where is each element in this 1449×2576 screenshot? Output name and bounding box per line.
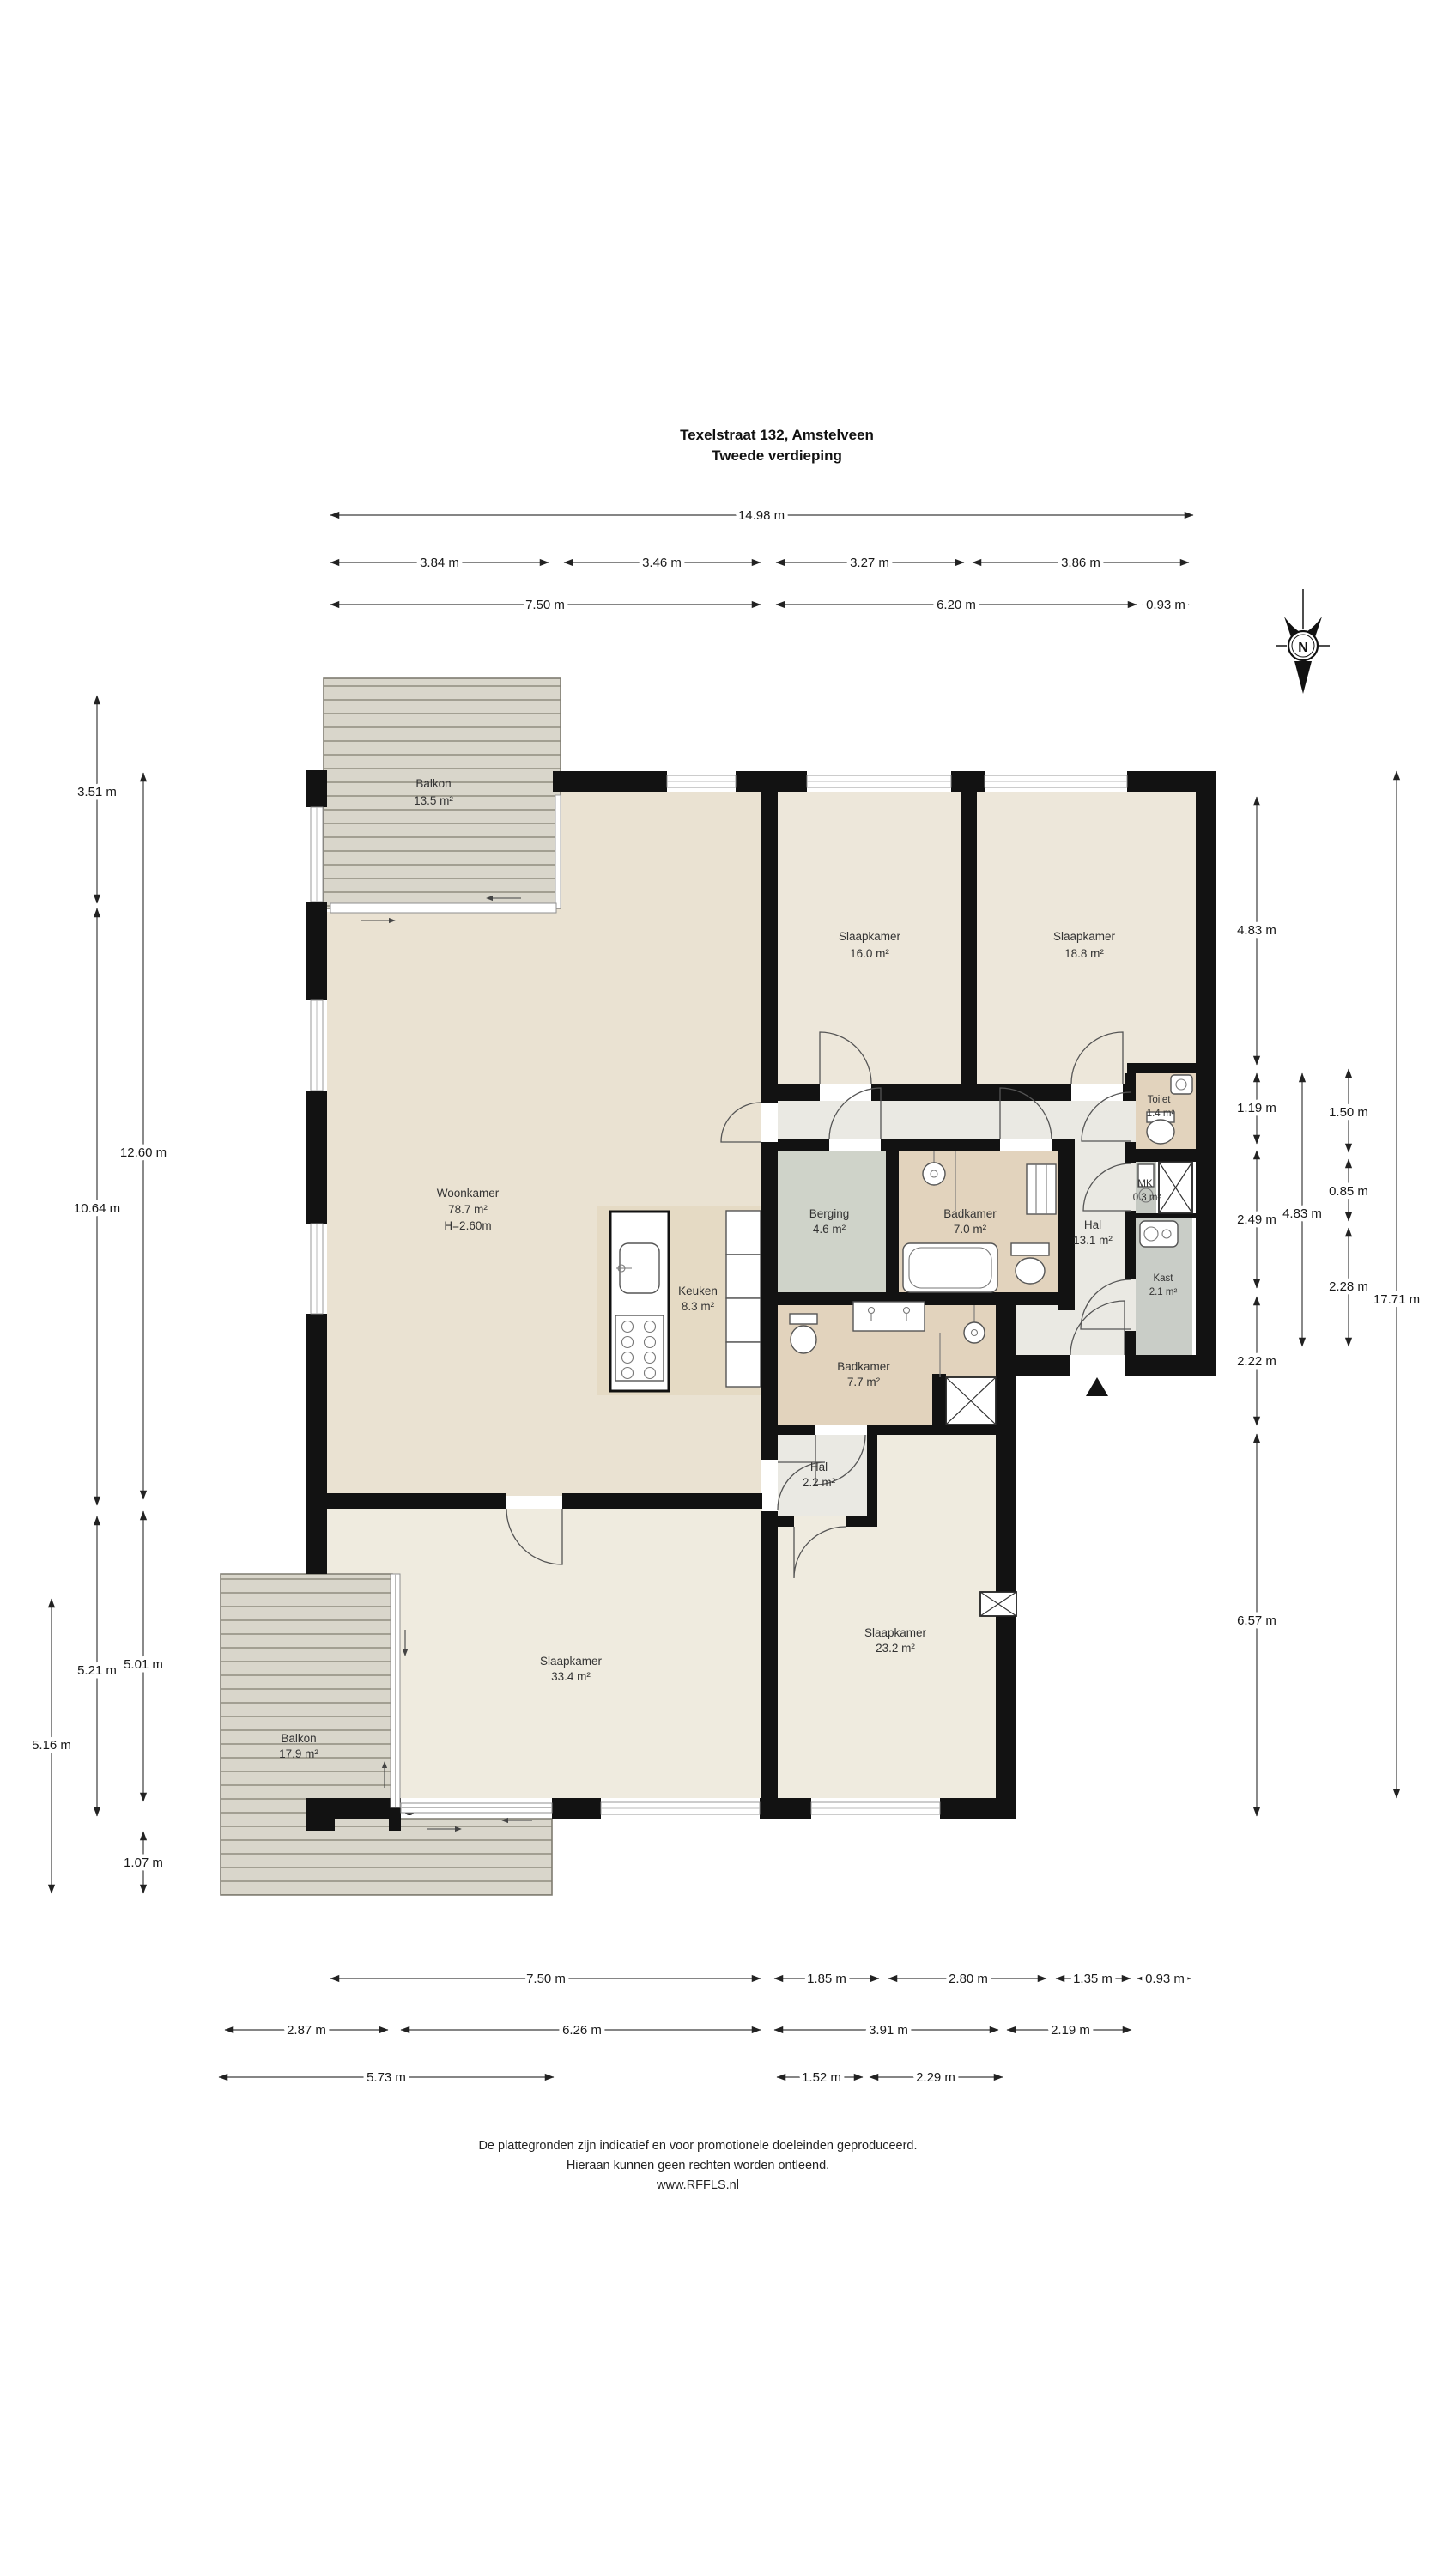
footer-line1: De plattegronden zijn indicatief en voor… [478,2139,917,2153]
room-area-kast: 2.1 m² [1149,1287,1178,1297]
dim-label: 2.49 m [1237,1212,1276,1227]
room-label-slaapkamer334: Slaapkamer [540,1655,603,1668]
room-area-mk: 0.3 m² [1133,1193,1161,1203]
room-label-toilet: Toilet [1148,1095,1172,1105]
dim-label: 2.19 m [1051,2023,1090,2038]
room-area-berging: 4.6 m² [813,1223,846,1236]
disclaimer-footer: De plattegronden zijn indicatief en voor… [478,2139,917,2192]
dim-label: 1.50 m [1329,1105,1368,1120]
room-area-slaapkamer18: 18.8 m² [1064,947,1104,960]
room-label-woonkamer: Woonkamer [437,1187,500,1200]
shaft-box [1159,1162,1192,1213]
dim-label: 12.60 m [120,1145,167,1160]
room-label-slaapkamer16: Slaapkamer [839,930,901,943]
room-area-hal22: 2.2 m² [803,1476,836,1489]
dim-label: 10.64 m [74,1201,120,1216]
dim-label: 5.21 m [77,1663,117,1678]
room-label-mk: MK [1137,1179,1153,1189]
room-label-balkon-top: Balkon [415,777,451,790]
footer-line3: www.RFFLS.nl [656,2178,739,2192]
room-area-balkon-bottom: 17.9 m² [279,1747,318,1760]
room-area-balkon-top: 13.5 m² [414,794,453,807]
dim-label: 6.57 m [1237,1613,1276,1628]
hal-entry-floor [1016,1305,1075,1355]
dim-label: 17.71 m [1373,1292,1420,1307]
dimensions-left: 3.51 m 12.60 m 10.64 m 5.21 m 5.01 m 5.1… [32,696,167,1893]
room-height-woonkamer: H=2.60m [444,1219,491,1232]
dim-label: 6.20 m [937,598,976,612]
dim-label: 2.28 m [1329,1279,1368,1294]
dim-label: 3.27 m [850,556,889,570]
room-label-hal22: Hal [810,1461,828,1473]
dim-label: 2.80 m [949,1971,988,1986]
room-area-hal131: 13.1 m² [1073,1234,1113,1247]
room-area-slaapkamer232: 23.2 m² [876,1642,915,1655]
north-compass: N [1276,589,1330,694]
floorplan-drawing: Texelstraat 132, Amstelveen Tweede verdi… [0,0,1449,2576]
room-area-keuken: 8.3 m² [682,1300,715,1313]
dim-label: 0.93 m [1145,1971,1185,1986]
dim-label: 7.50 m [525,598,565,612]
kitchen-island [610,1212,669,1391]
entrance-arrow [1086,1377,1108,1396]
dim-label: 1.35 m [1073,1971,1113,1986]
dim-label: 2.87 m [287,2023,326,2038]
dim-label: 2.29 m [916,2070,955,2085]
dimensions-right: 4.83 m 1.19 m 2.49 m 2.22 m 6.57 m 4.83 … [1237,771,1420,1816]
kitchen-cabinets [726,1211,761,1387]
room-area-slaapkamer16: 16.0 m² [850,947,889,960]
room-area-toilet: 1.4 m² [1147,1109,1175,1119]
dim-label: 7.50 m [526,1971,566,1986]
dim-label: 0.93 m [1146,598,1185,612]
title-line2: Tweede verdieping [712,447,842,464]
dim-label: 5.73 m [367,2070,406,2085]
dim-label: 6.26 m [562,2023,602,2038]
dim-label: 0.85 m [1329,1184,1368,1199]
dimensions-top: 14.98 m 3.84 m 3.46 m 3.27 m 3.86 m 7.50… [330,508,1193,612]
compass-n-label: N [1298,641,1308,655]
dim-label: 3.86 m [1061,556,1100,570]
dim-label: 3.46 m [642,556,682,570]
dim-label: 5.01 m [124,1657,163,1672]
room-label-keuken: Keuken [678,1285,718,1297]
room-label-badkamer70: Badkamer [943,1207,997,1220]
berging-floor [778,1151,886,1292]
dim-label: 3.51 m [77,785,117,799]
room-area-woonkamer: 78.7 m² [448,1203,488,1216]
room-label-slaapkamer232: Slaapkamer [864,1626,927,1639]
room-label-kast: Kast [1153,1273,1173,1284]
dim-label: 4.83 m [1282,1206,1322,1221]
room-label-hal131: Hal [1084,1218,1101,1231]
room-label-badkamer77: Badkamer [837,1360,890,1373]
balcony-top [324,678,561,908]
floorplan-page: Texelstraat 132, Amstelveen Tweede verdi… [0,0,1449,2576]
dimensions-bottom: 7.50 m 1.85 m 2.80 m 1.35 m 0.93 m 2.87 … [219,1971,1191,2085]
dim-label: 1.85 m [807,1971,846,1986]
dim-label: 5.16 m [32,1738,71,1753]
dim-label: 3.84 m [420,556,459,570]
room-area-slaapkamer334: 33.4 m² [551,1670,591,1683]
room-area-badkamer70: 7.0 m² [954,1223,987,1236]
room-label-slaapkamer18: Slaapkamer [1053,930,1116,943]
wall-vent-box [980,1592,1016,1616]
room-label-balkon-bottom: Balkon [281,1732,316,1745]
title-line1: Texelstraat 132, Amstelveen [680,427,874,443]
room-area-badkamer77: 7.7 m² [847,1376,881,1388]
dim-label: 4.83 m [1237,923,1276,938]
dim-label: 1.19 m [1237,1101,1276,1115]
dim-label: 2.22 m [1237,1354,1276,1369]
dim-label: 1.52 m [802,2070,841,2085]
dim-label: 14.98 m [738,508,785,523]
plan-title: Texelstraat 132, Amstelveen Tweede verdi… [680,427,874,464]
footer-line2: Hieraan kunnen geen rechten worden ontle… [567,2159,829,2172]
room-label-berging: Berging [809,1207,850,1220]
dim-label: 3.91 m [869,2023,908,2038]
dim-label: 1.07 m [124,1856,163,1870]
